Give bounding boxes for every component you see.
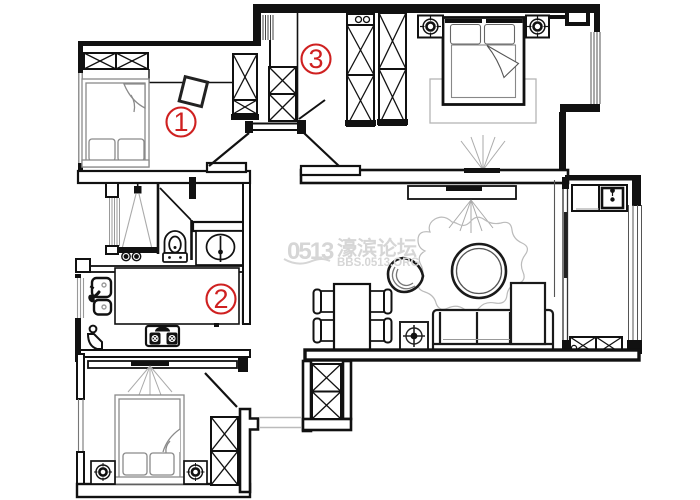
svg-text:BBS.0513.ORG: BBS.0513.ORG xyxy=(337,257,420,269)
svg-text:1: 1 xyxy=(173,107,188,137)
svg-text:2: 2 xyxy=(213,284,228,314)
svg-text:3: 3 xyxy=(308,44,323,74)
